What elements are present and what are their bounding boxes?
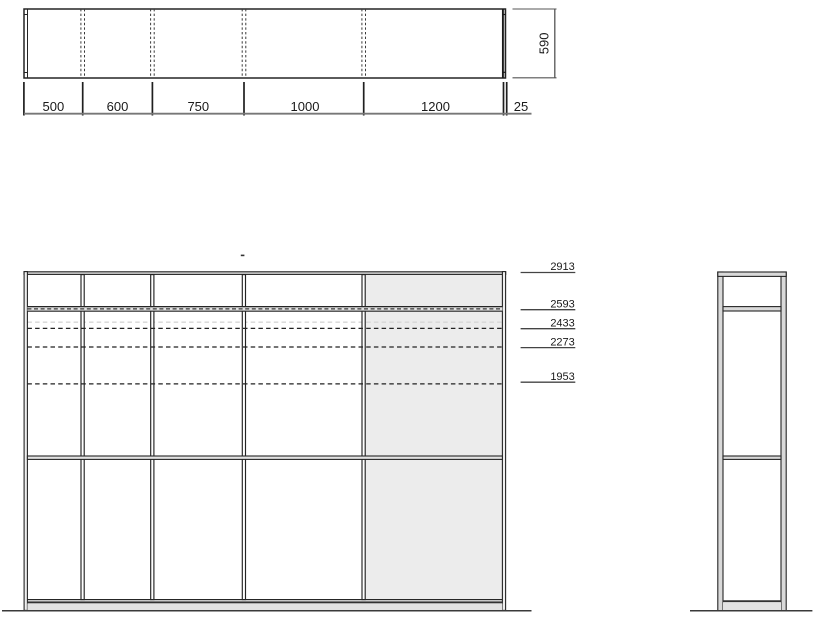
svg-text:2913: 2913 [550,261,574,273]
svg-text:500: 500 [43,99,65,114]
svg-text:2593: 2593 [550,299,574,311]
svg-text:2273: 2273 [550,336,574,348]
svg-text:1200: 1200 [421,99,450,114]
svg-text:750: 750 [187,99,209,114]
svg-text:25: 25 [514,99,528,114]
svg-text:1000: 1000 [291,99,320,114]
svg-text:2433: 2433 [550,318,574,330]
svg-text:590: 590 [537,33,552,55]
svg-text:1953: 1953 [550,371,574,383]
svg-text:600: 600 [107,99,129,114]
